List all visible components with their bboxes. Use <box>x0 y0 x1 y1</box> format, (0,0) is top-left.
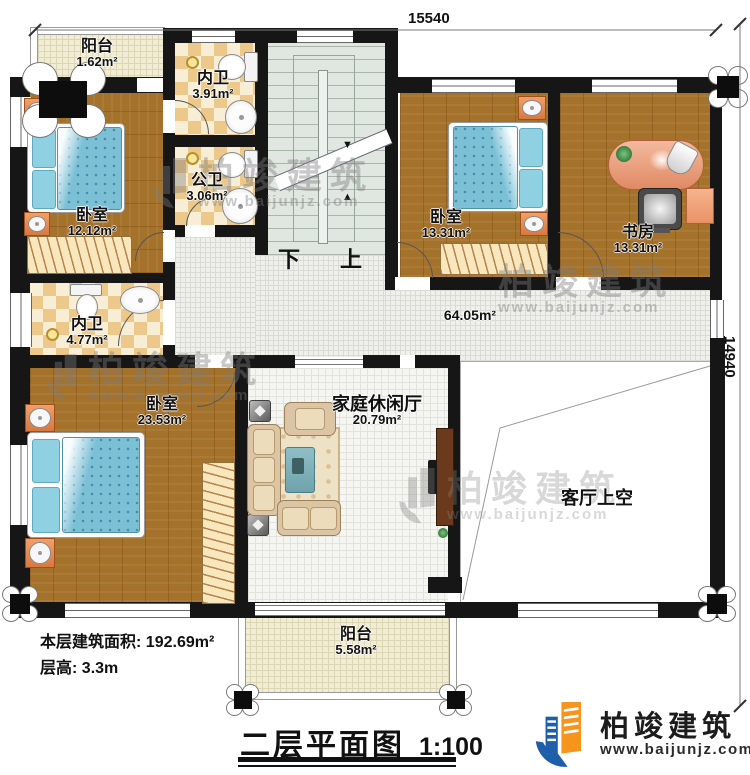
room-label-bath-inner-2: 内卫 4.77m² <box>66 316 107 347</box>
nightstand <box>520 212 548 236</box>
door-opening <box>195 355 233 368</box>
plant-icon <box>616 146 632 162</box>
room-name: 阳台 <box>76 38 117 55</box>
window <box>592 79 677 93</box>
tv-cabinet <box>436 428 454 526</box>
window <box>432 79 515 93</box>
door-opening <box>395 277 430 290</box>
room-area: 23.53m² <box>138 413 186 427</box>
note-height-label: 层高: <box>40 660 77 677</box>
floor-drain-icon <box>186 56 199 69</box>
washbasin-icon <box>120 286 160 314</box>
window <box>710 300 724 338</box>
washbasin-icon <box>225 100 257 134</box>
room-label-study: 书房 13.31m² <box>614 224 662 255</box>
sofa <box>247 424 281 516</box>
dimension-tick <box>734 18 746 30</box>
floor-hallway <box>385 290 400 362</box>
room-area: 1.62m² <box>76 55 117 69</box>
stairs-up-label: 上 <box>340 242 362 274</box>
door-opening <box>163 300 175 345</box>
floor-drain-icon <box>46 328 59 341</box>
wall-segment <box>233 355 295 368</box>
nightstand <box>25 404 55 432</box>
void-edge-line <box>460 362 461 602</box>
room-area: 3.06m² <box>186 189 227 203</box>
corner-table <box>249 400 271 422</box>
tv-icon <box>428 460 437 494</box>
window <box>65 603 190 618</box>
column <box>22 62 106 138</box>
door-opening <box>185 225 215 237</box>
note-area-label: 本层建筑面积: <box>40 634 141 651</box>
note-height: 层高: 3.3m <box>40 656 214 682</box>
column <box>2 586 38 622</box>
room-area: 3.91m² <box>192 87 233 101</box>
window <box>192 30 235 43</box>
plant-icon <box>438 528 448 538</box>
brand-logo-icon <box>528 702 590 768</box>
stair-arrow-icon: ▲ <box>342 192 353 203</box>
nightstand <box>24 212 50 236</box>
window <box>518 603 658 618</box>
dimension-right: 14940 <box>721 336 738 378</box>
room-label-living-void: 客厅上空 <box>561 490 633 507</box>
note-area-value: 192.69m² <box>146 634 215 651</box>
plan-notes: 本层建筑面积: 192.69m² 层高: 3.3m <box>40 630 214 682</box>
room-label-balcony-bottom: 阳台 5.58m² <box>335 626 376 657</box>
balcony-railing <box>32 27 165 35</box>
door-opening <box>163 230 175 262</box>
floor-hallway <box>255 255 268 357</box>
room-name: 阳台 <box>335 626 376 643</box>
column <box>226 684 259 716</box>
door-opening <box>137 78 163 92</box>
armchair <box>284 402 336 436</box>
room-name: 书房 <box>614 224 662 241</box>
toilet-tank <box>244 52 258 82</box>
cushion <box>253 429 275 455</box>
floor-living-void <box>460 362 710 602</box>
wall-segment <box>363 355 400 368</box>
wall-segment <box>415 355 460 368</box>
room-name: 家庭休闲厅 <box>332 396 422 413</box>
bed <box>448 122 548 212</box>
room-area: 5.58m² <box>335 643 376 657</box>
side-table <box>686 188 714 224</box>
door-opening <box>556 277 601 290</box>
column <box>708 66 748 108</box>
bed <box>27 432 145 538</box>
pillow <box>32 439 60 483</box>
column-core <box>447 691 465 709</box>
mattress <box>453 126 518 209</box>
room-name: 客厅上空 <box>561 490 633 507</box>
title-underline <box>238 757 456 762</box>
column-core <box>234 691 252 709</box>
wall-segment <box>20 355 195 368</box>
pillow <box>32 170 56 209</box>
pillow <box>519 169 543 208</box>
pass-through-opening <box>295 357 363 365</box>
corner-table <box>247 514 269 536</box>
nightstand <box>518 96 546 120</box>
door-opening <box>163 100 175 133</box>
room-name: 内卫 <box>66 316 107 333</box>
wall-segment <box>428 577 462 593</box>
balcony-railing <box>238 692 457 700</box>
room-label-bedroom-3: 卧室 23.53m² <box>138 396 186 427</box>
stair-arrow-icon: ▼ <box>342 140 353 151</box>
note-area: 本层建筑面积: 192.69m² <box>40 630 214 656</box>
wall-segment <box>175 135 255 147</box>
room-area: 20.79m² <box>332 413 422 427</box>
floor-plan-canvas: ▼ ▲ <box>0 0 750 775</box>
column-core <box>10 594 30 614</box>
stairs-down-label: 下 <box>278 242 300 274</box>
mattress <box>57 127 122 210</box>
room-area: 13.31m² <box>422 226 470 240</box>
room-label-bedroom-2: 卧室 13.31m² <box>422 209 470 240</box>
mattress <box>62 437 140 533</box>
room-name: 卧室 <box>422 209 470 226</box>
wardrobe <box>440 243 548 275</box>
cushion <box>295 408 325 430</box>
cushion <box>253 485 275 511</box>
room-label-bath-inner-1: 内卫 3.91m² <box>192 70 233 101</box>
room-area: 64.05m² <box>444 308 496 322</box>
wardrobe <box>202 462 235 604</box>
window <box>10 293 32 347</box>
cushion <box>310 507 337 530</box>
brand-logo: 柏竣建筑 www.baijunjz.com <box>528 702 750 768</box>
wall-segment <box>163 225 268 237</box>
coffee-table <box>285 447 315 493</box>
door-opening <box>400 355 415 368</box>
column-core <box>717 76 739 98</box>
wardrobe <box>27 236 132 274</box>
room-name: 内卫 <box>192 70 233 87</box>
room-area: 13.31m² <box>614 241 662 255</box>
room-label-family-hall: 家庭休闲厅 20.79m² <box>332 396 422 427</box>
dimension-top: 15540 <box>408 10 450 27</box>
pillow <box>32 487 60 533</box>
brand-name: 柏竣建筑 <box>600 712 750 742</box>
wall-segment <box>20 273 175 283</box>
toilet-tank <box>244 150 258 178</box>
room-name: 卧室 <box>138 396 186 413</box>
floor-drain-icon <box>186 152 199 165</box>
room-name: 公卫 <box>186 172 227 189</box>
title-underline <box>238 765 456 767</box>
nightstand <box>25 538 55 568</box>
column <box>439 684 472 716</box>
room-label-bath-public: 公卫 3.06m² <box>186 172 227 203</box>
note-height-value: 3.3m <box>82 660 118 677</box>
cushion <box>253 457 275 483</box>
brand-url: www.baijunjz.com <box>600 742 750 758</box>
cushion <box>282 507 309 530</box>
floor-hallway <box>175 237 255 357</box>
floor-corridor <box>400 290 710 362</box>
void-edge-line <box>460 361 710 362</box>
room-area: 12.12m² <box>68 224 116 238</box>
room-label-bedroom-1: 卧室 12.12m² <box>68 207 116 238</box>
dimension-tick <box>710 24 722 36</box>
sliding-door <box>255 603 445 616</box>
window <box>297 30 353 43</box>
column-core <box>39 81 87 118</box>
room-label-hallway: 64.05m² <box>444 308 496 322</box>
column <box>698 586 736 622</box>
column-core <box>707 594 727 614</box>
room-name: 卧室 <box>68 207 116 224</box>
sofa <box>277 500 341 536</box>
pillow <box>519 128 543 167</box>
room-label-balcony-top: 阳台 1.62m² <box>76 38 117 69</box>
room-area: 4.77m² <box>66 333 107 347</box>
